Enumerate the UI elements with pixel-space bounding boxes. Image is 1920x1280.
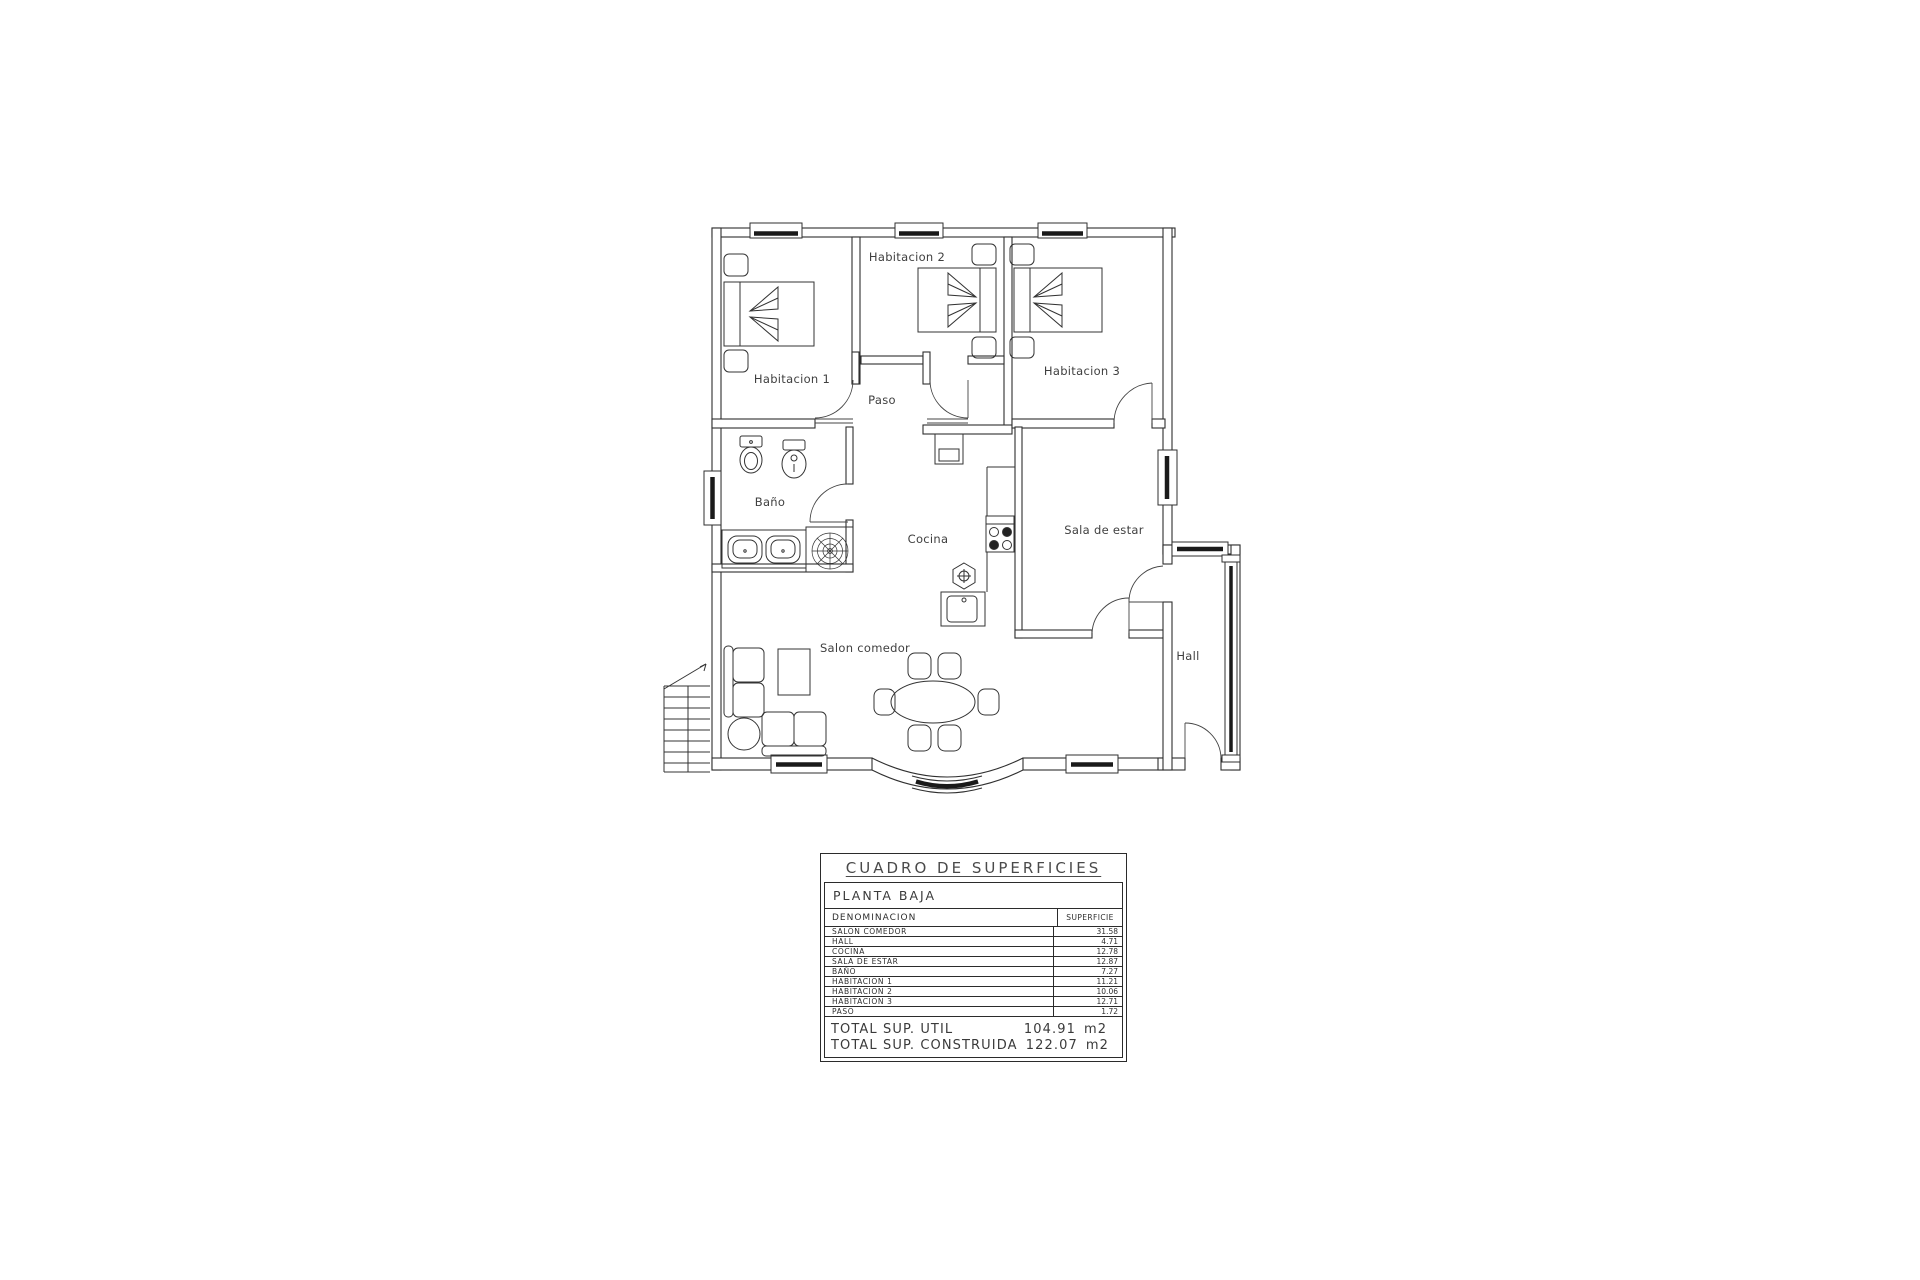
toilet: [740, 436, 762, 473]
kitchen-sink: [941, 592, 985, 626]
table-row: BAÑO 7.27: [825, 967, 1122, 977]
dining-table: [874, 653, 999, 751]
surface-table-body: PLANTA BAJA DENOMINACION SUPERFICIE SALO…: [824, 882, 1123, 1058]
room-label-habitacion-1: Habitacion 1: [754, 372, 830, 386]
col-denominacion: DENOMINACION: [825, 909, 1057, 926]
floor-label: PLANTA BAJA: [825, 883, 1122, 909]
bidet: [782, 440, 806, 478]
table-row: HABITACION 3 12.71: [825, 997, 1122, 1007]
table-row: COCINA 12.78: [825, 947, 1122, 957]
table-row: SALA DE ESTAR 12.87: [825, 957, 1122, 967]
stove: [986, 516, 1014, 552]
room-label-salon-comedor: Salon comedor: [820, 641, 910, 655]
bay-window: [872, 758, 1023, 793]
bed-habitacion-3: [1010, 244, 1102, 358]
surface-table: CUADRO DE SUPERFICIES PLANTA BAJA DENOMI…: [820, 853, 1127, 1062]
table-header: DENOMINACION SUPERFICIE: [825, 909, 1122, 927]
kitchen-cabinet: [935, 434, 963, 464]
surface-table-title: CUADRO DE SUPERFICIES: [821, 854, 1126, 881]
table-row: SALON COMEDOR 31.58: [825, 927, 1122, 937]
table-row: PASO 1.72: [825, 1007, 1122, 1017]
room-label-sala-de-estar: Sala de estar: [1064, 523, 1144, 537]
coffee-table: [778, 649, 810, 695]
bed-habitacion-1: [724, 254, 814, 372]
stairs: [664, 664, 710, 772]
room-label-cocina: Cocina: [908, 532, 949, 546]
double-sink: [722, 530, 806, 568]
total-construida-row: TOTAL SUP. CONSTRUIDA 122.07 m2: [825, 1038, 1122, 1053]
room-label-hall: Hall: [1176, 649, 1199, 663]
total-util-row: TOTAL SUP. UTIL 104.91 m2: [825, 1022, 1122, 1037]
table-row: HABITACION 2 10.06: [825, 987, 1122, 997]
room-label-habitacion-3: Habitacion 3: [1044, 364, 1120, 378]
room-label-habitacion-2: Habitacion 2: [869, 250, 945, 264]
room-label-paso: Paso: [868, 393, 896, 407]
table-row: HABITACION 1 11.21: [825, 977, 1122, 987]
room-label-bano: Baño: [755, 495, 785, 509]
sofa-l-shape: [724, 646, 826, 756]
col-superficie: SUPERFICIE: [1057, 909, 1122, 926]
table-totals: TOTAL SUP. UTIL 104.91 m2 TOTAL SUP. CON…: [825, 1017, 1122, 1057]
table-row: HALL 4.71: [825, 937, 1122, 947]
floor-plan: Habitacion 1 Habitacion 2 Habitacion 3 P…: [0, 0, 1920, 1280]
water-heater: [953, 563, 975, 589]
drawing-sheet: Habitacion 1 Habitacion 2 Habitacion 3 P…: [0, 0, 1920, 1280]
